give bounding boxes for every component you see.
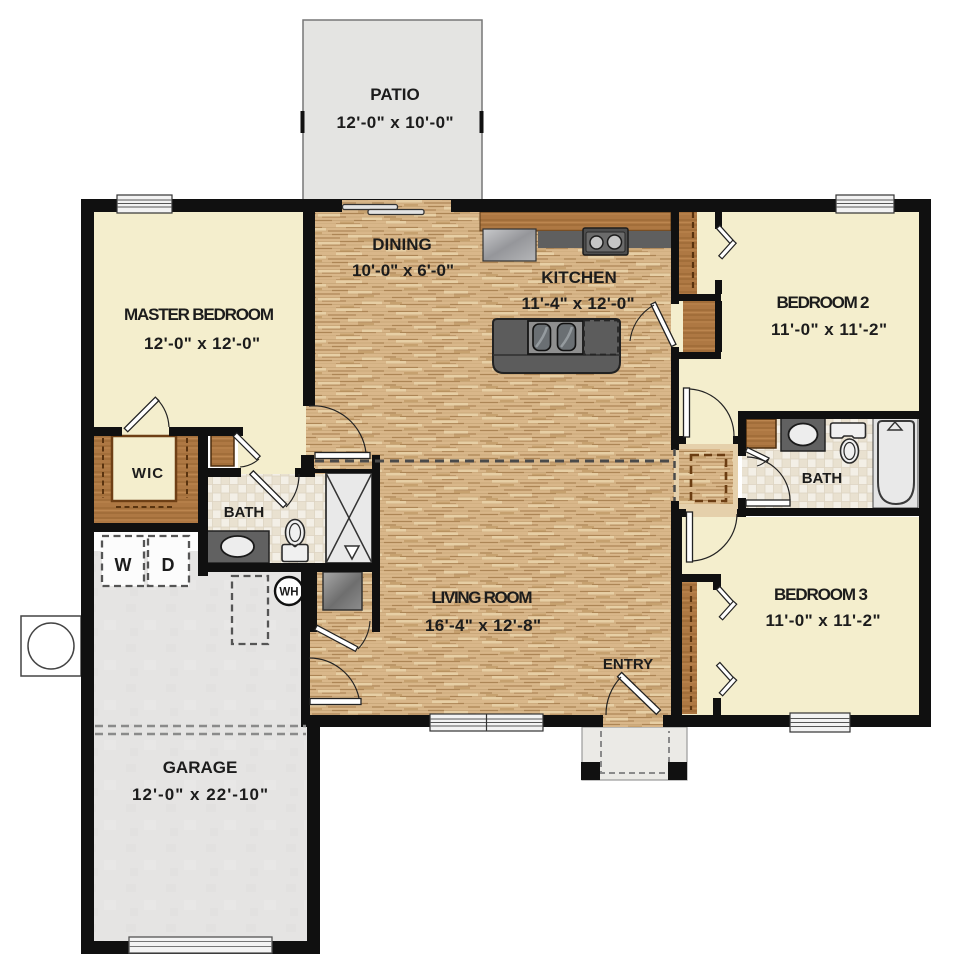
svg-text:GARAGE: GARAGE	[163, 758, 238, 777]
svg-text:LIVING ROOM: LIVING ROOM	[432, 588, 533, 607]
svg-text:10'-0" x 6'-0": 10'-0" x 6'-0"	[352, 261, 454, 280]
svg-text:ENTRY: ENTRY	[603, 656, 653, 673]
svg-text:12'-0" x 12'-0": 12'-0" x 12'-0"	[144, 334, 260, 353]
svg-text:DINING: DINING	[372, 235, 432, 254]
svg-text:12'-0" x 22'-10": 12'-0" x 22'-10"	[132, 785, 268, 804]
svg-text:11'-0" x 11'-2": 11'-0" x 11'-2"	[766, 611, 881, 630]
svg-text:WH: WH	[279, 587, 298, 599]
svg-text:WIC: WIC	[132, 465, 164, 482]
svg-text:PATIO: PATIO	[370, 85, 419, 104]
svg-text:MASTER BEDROOM: MASTER BEDROOM	[124, 305, 274, 324]
svg-text:11'-0" x 11'-2": 11'-0" x 11'-2"	[771, 320, 887, 339]
svg-text:BEDROOM 2: BEDROOM 2	[777, 293, 870, 312]
svg-text:W: W	[115, 555, 132, 575]
svg-text:16'-4" x 12'-8": 16'-4" x 12'-8"	[425, 616, 541, 635]
svg-text:11'-4" x 12'-0": 11'-4" x 12'-0"	[522, 294, 635, 313]
svg-text:BEDROOM 3: BEDROOM 3	[774, 585, 868, 604]
svg-text:D: D	[162, 555, 175, 575]
svg-text:BATH: BATH	[224, 504, 265, 521]
svg-text:KITCHEN: KITCHEN	[541, 268, 617, 287]
svg-text:BATH: BATH	[802, 470, 843, 487]
svg-text:12'-0" x 10'-0": 12'-0" x 10'-0"	[337, 113, 454, 132]
